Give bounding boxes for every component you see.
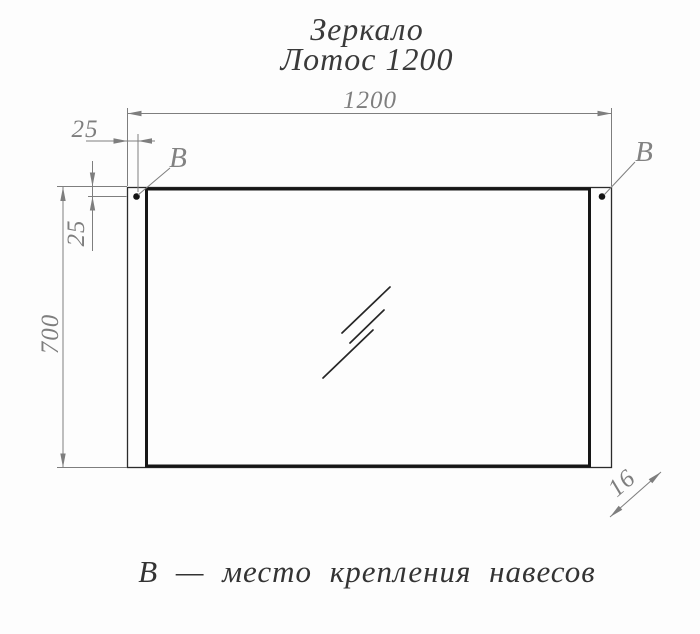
dim-width-arrow-left-icon: [128, 111, 142, 116]
dim-height-arrow-bottom-icon: [60, 454, 65, 468]
dim-height-arrow-top-icon: [60, 187, 65, 201]
glass-hatch-line-3: [323, 330, 373, 378]
dim-height-label: 700: [37, 314, 64, 355]
mirror-body: [128, 188, 612, 468]
mount-leader-left: [138, 168, 170, 195]
mirror-glass-outline: [147, 189, 590, 466]
dim-thickness: 16: [603, 464, 661, 517]
mount-callouts: B B: [138, 136, 653, 195]
dim-offset-side-label: 25: [63, 220, 90, 247]
mount-label-left: B: [169, 142, 187, 174]
dim-width-arrow-right-icon: [598, 111, 612, 116]
dim-offset-side-arrow-down-icon: [90, 197, 95, 211]
drawing-sheet: Зеркало Лотос 1200 1200: [0, 0, 700, 634]
dim-offset-top-label: 25: [72, 116, 99, 143]
drawing-title-line2: Лотос 1200: [280, 41, 454, 77]
technical-drawing-svg: Зеркало Лотос 1200 1200: [0, 0, 700, 634]
dim-offset-side-arrow-up-icon: [90, 173, 95, 187]
glass-symbol: [323, 287, 390, 378]
mirror-outer-outline: [128, 188, 612, 468]
legend-text: В — место крепления навесов: [138, 554, 596, 589]
dim-offset-top-arrow-right-icon: [138, 138, 152, 143]
dim-offset-side: 25: [57, 161, 127, 251]
dim-thickness-label: 16: [603, 464, 641, 502]
mount-leader-right: [604, 162, 635, 195]
dim-width: 1200: [128, 87, 612, 186]
dim-width-label: 1200: [343, 87, 397, 114]
glass-hatch-line-2: [350, 310, 384, 343]
dim-offset-top: 25: [72, 116, 156, 192]
dim-offset-top-arrow-left-icon: [114, 138, 128, 143]
mount-label-right: B: [635, 136, 653, 168]
